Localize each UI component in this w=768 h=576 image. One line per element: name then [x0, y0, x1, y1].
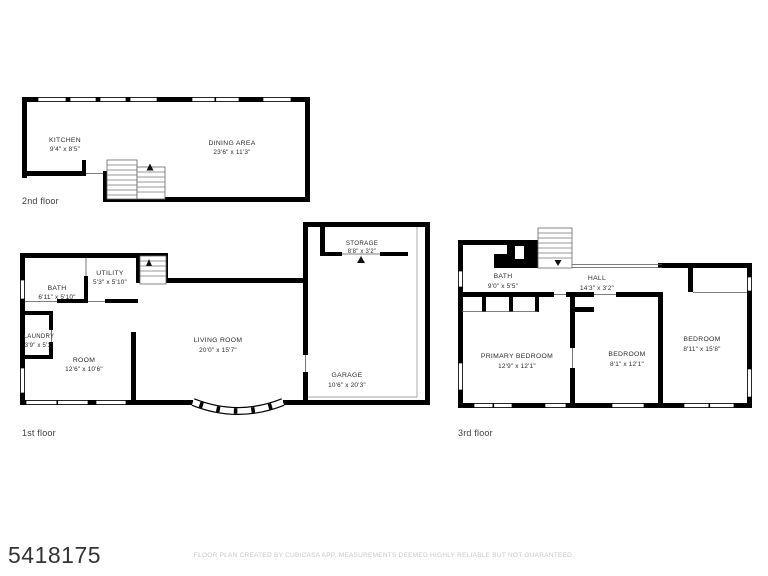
room-name: BEDROOM: [683, 336, 720, 343]
room-label-room: ROOM 12'6" x 10'6": [65, 357, 103, 373]
room-dims: 8'8" x 3'2": [348, 249, 376, 255]
floor-plan-1st-floor: BATH 6'11" x 5'10" UTILITY 5'3" x 5'10" …: [15, 212, 435, 427]
room-name: LAUNDRY: [24, 334, 55, 340]
room-label-living-room: LIVING ROOM 20'0" x 15'7": [194, 337, 243, 354]
room-dims: 20'0" x 15'7": [199, 347, 237, 354]
floor-label-3rd: 3rd floor: [458, 428, 493, 438]
walls: [458, 240, 752, 408]
room-name: BATH: [494, 273, 513, 280]
staircase-icon: [140, 256, 166, 284]
room-dims: 3'9" x 5'1": [25, 343, 53, 349]
room-label-hall: HALL 14'3" x 3'2": [580, 275, 614, 292]
room-name: BEDROOM: [608, 351, 645, 358]
room-name: LIVING ROOM: [194, 337, 243, 344]
room-name: HALL: [588, 275, 606, 282]
room-name: BATH: [48, 285, 67, 292]
room-dims: 23'6" x 11'3": [213, 149, 250, 156]
storage-entry-arrow-icon: [357, 256, 365, 263]
floor-plan-2nd-floor: KITCHEN 9'4" x 8'5" DINING AREA 23'6" x …: [15, 90, 315, 205]
room-label-bath: BATH 9'0" x 5'5": [488, 273, 518, 290]
floor-plan-page: KITCHEN 9'4" x 8'5" DINING AREA 23'6" x …: [0, 0, 768, 576]
room-label-bath: BATH 6'11" x 5'10": [38, 285, 75, 301]
room-dims: 8'11" x 15'8": [683, 346, 720, 353]
room-dims: 12'6" x 10'6": [65, 366, 103, 373]
room-name: KITCHEN: [49, 137, 81, 144]
room-dims: 9'4" x 8'5": [50, 146, 80, 153]
floor-plan-3rd-floor: BATH 9'0" x 5'5" HALL 14'3" x 3'2" PRIMA…: [450, 212, 765, 427]
staircase-icon: [107, 160, 165, 199]
floor-label-1st: 1st floor: [22, 428, 56, 438]
room-label-kitchen: KITCHEN 9'4" x 8'5": [49, 137, 81, 153]
room-name: ROOM: [73, 357, 95, 364]
room-name: PRIMARY BEDROOM: [481, 353, 553, 360]
room-name: GARAGE: [332, 372, 363, 379]
bay-window: [193, 402, 283, 411]
room-dims: 6'11" x 5'10": [38, 294, 75, 301]
disclaimer-text: FLOOR PLAN CREATED BY CUBICASA APP. MEAS…: [0, 552, 768, 559]
room-dims: 5'3" x 5'10": [93, 279, 127, 286]
staircase-icon: [538, 228, 572, 268]
room-label-bedroom-right: BEDROOM 8'11" x 15'8": [683, 336, 720, 353]
room-label-garage: GARAGE 10'6" x 20'3": [328, 372, 366, 389]
room-label-laundry: LAUNDRY 3'9" x 5'1": [24, 334, 55, 349]
room-dims: 12'9" x 12'1": [498, 363, 536, 370]
room-label-dining-area: DINING AREA 23'6" x 11'3": [208, 140, 255, 156]
room-dims: 10'6" x 20'3": [328, 382, 366, 389]
room-label-utility: UTILITY 5'3" x 5'10": [93, 270, 127, 286]
room-label-bedroom-center: BEDROOM 8'1" x 12'1": [608, 351, 645, 368]
floor-label-2nd: 2nd floor: [22, 196, 59, 206]
room-dims: 14'3" x 3'2": [580, 285, 614, 292]
room-dims: 9'0" x 5'5": [488, 283, 518, 290]
room-name: UTILITY: [96, 270, 124, 277]
room-dims: 8'1" x 12'1": [610, 361, 644, 368]
room-label-primary-bedroom: PRIMARY BEDROOM 12'9" x 12'1": [481, 353, 553, 370]
room-name: DINING AREA: [208, 140, 255, 147]
room-label-storage: STORAGE 8'8" x 3'2": [346, 240, 378, 255]
room-name: STORAGE: [346, 240, 378, 247]
